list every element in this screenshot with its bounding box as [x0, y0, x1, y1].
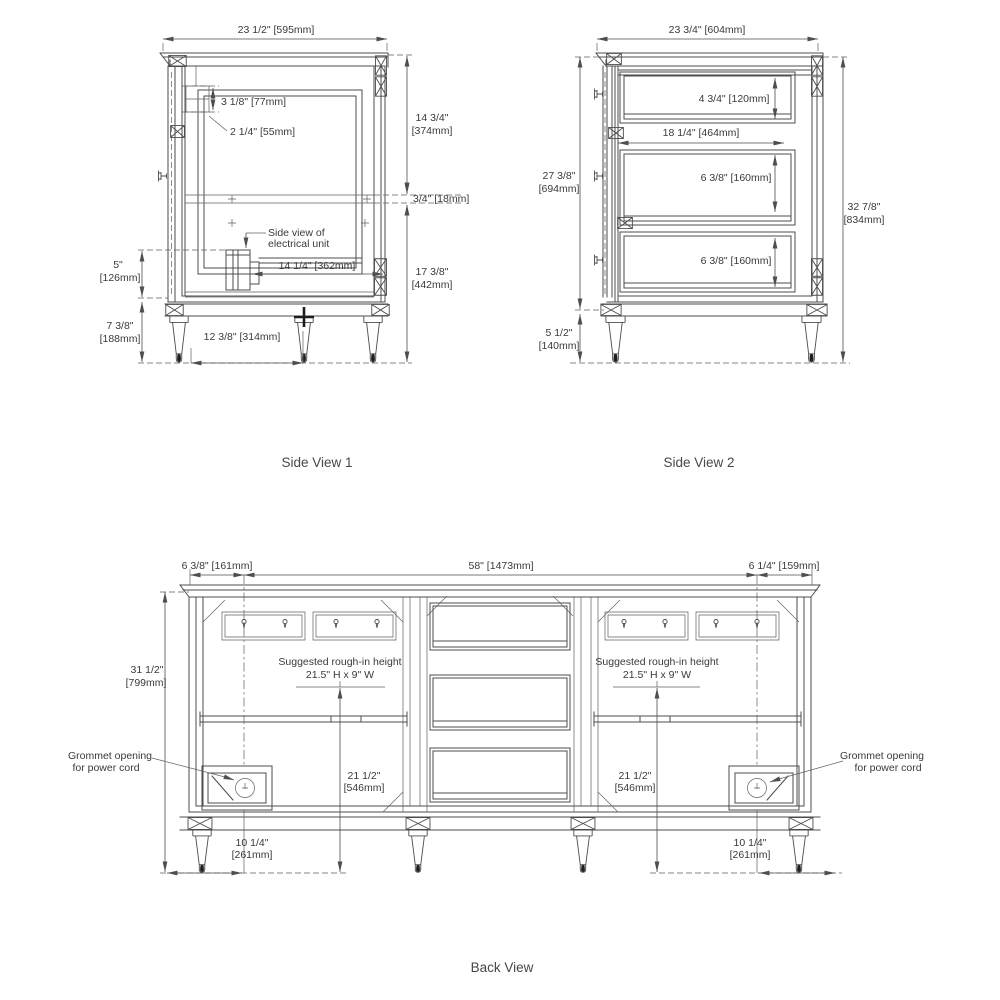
bv-grommet-center-marks	[242, 783, 760, 789]
bv-dim-center-width: 58" [1473mm]	[468, 560, 533, 572]
bv-dim-grommet-offset-left-in: 10 1/4"	[236, 837, 269, 849]
side-view-1-title: Side View 1	[281, 455, 352, 470]
bv-roughin-leader-left	[296, 681, 385, 687]
bv-keyhole-icon	[375, 620, 379, 628]
bv-grommet-note-right-line2: for power cord	[854, 762, 921, 774]
vanity-dimension-drawing: 23 1/2" [595mm] 3 1/8" [77mm] 2 1/4" [55…	[0, 0, 1000, 1000]
sv2-dim-cabinet-height-in: 27 3/8"	[543, 170, 576, 182]
sv1-x-block	[166, 304, 183, 315]
bv-dim-overall-height-in: 31 1/2"	[131, 664, 164, 676]
bv-roughin-note-right-line1: Suggested rough-in height	[595, 656, 718, 668]
bv-dim-grommet-offset-left-mm: [261mm]	[232, 849, 273, 861]
bv-grommet-centerlines-lower	[244, 810, 757, 873]
sv1-countertop	[160, 53, 388, 67]
bv-keyhole-icon	[283, 620, 287, 628]
bv-back-rails	[200, 712, 801, 726]
sv2-countertop	[596, 53, 823, 67]
sv1-dim-width: 23 1/2" [595mm]	[238, 24, 315, 36]
bv-body-frame	[189, 597, 811, 812]
bv-countertop	[180, 585, 820, 597]
bv-dim-grommet-offset-right-mm: [261mm]	[730, 849, 771, 861]
sv2-door-knob	[595, 255, 603, 266]
sv1-dim-leg-height-in: 7 3/8"	[106, 320, 133, 332]
bv-dim-grommet-offset-right-in: 10 1/4"	[734, 837, 767, 849]
bv-x-block	[571, 818, 595, 830]
bv-dim-right-offset: 6 1/4" [159mm]	[749, 560, 820, 572]
sv1-dim-electrical-width: 14 1/4" [362mm]	[279, 260, 356, 272]
bv-x-block	[188, 818, 212, 830]
sv2-dim-overall-height-mm: [834mm]	[844, 214, 885, 226]
bv-keyhole-icon	[622, 620, 626, 628]
sv2-x-block	[609, 127, 624, 138]
bv-drawer-backs	[430, 603, 570, 802]
side-view-2-drawing: 23 3/4" [604mm] 4 3/4" [120mm] 18 1/4" […	[539, 24, 885, 470]
sv1-x-block	[372, 304, 389, 315]
sv1-door-knob	[159, 171, 167, 182]
sv1-electrical-note-line2: electrical unit	[268, 238, 329, 250]
technical-drawing-page: 23 1/2" [595mm] 3 1/8" [77mm] 2 1/4" [55…	[0, 0, 1000, 1000]
bv-leg	[790, 830, 808, 872]
sv1-leg	[170, 316, 188, 362]
sv1-dim-cleat-height: 3 1/8" [77mm]	[221, 96, 286, 108]
bv-leg	[574, 830, 592, 872]
sv1-center-cross-mark	[294, 307, 314, 327]
bv-dividers	[403, 597, 598, 812]
sv2-dim-overall-height-in: 32 7/8"	[848, 201, 881, 213]
bv-base-rail	[180, 817, 820, 830]
bv-leg	[193, 830, 211, 872]
bv-keyhole-icon	[663, 620, 667, 628]
sv2-dim-cabinet-height-mm: [694mm]	[539, 183, 580, 195]
bv-x-block	[789, 818, 813, 830]
bv-roughin-leader-right	[613, 681, 700, 687]
bv-grommet-note-left-line2: for power cord	[72, 762, 139, 774]
sv1-base-rail	[165, 304, 388, 316]
bv-keyhole-icon	[714, 620, 718, 628]
sv1-dim-leg-spacing: 12 3/8" [314mm]	[204, 331, 281, 343]
sv2-dim-drawer3: 6 3/8" [160mm]	[701, 255, 772, 267]
sv1-dim-toe-space-in: 5"	[113, 259, 123, 271]
sv2-dim-drawer2: 6 3/8" [160mm]	[701, 172, 772, 184]
sv1-dim-lower-height-mm: [442mm]	[412, 279, 453, 291]
sv2-base-rail	[601, 304, 827, 316]
bv-dim-left-offset: 6 3/8" [161mm]	[182, 560, 253, 572]
sv1-dim-leg-height-mm: [188mm]	[100, 333, 141, 345]
bv-corner-braces	[203, 596, 799, 812]
sv2-door-knob	[595, 171, 603, 182]
sv2-dim-leg-height-in: 5 1/2"	[545, 327, 572, 339]
sv1-dim-upper-height-mm: [374mm]	[412, 125, 453, 137]
sv2-dim-opening: 18 1/4" [464mm]	[663, 127, 740, 139]
bv-dim-overall-height-mm: [799mm]	[126, 677, 167, 689]
side-view-1-drawing: 23 1/2" [595mm] 3 1/8" [77mm] 2 1/4" [55…	[100, 24, 470, 470]
bv-leg	[409, 830, 427, 872]
sv1-screw-marks	[228, 195, 371, 227]
bv-hanger-panels	[222, 612, 779, 640]
bv-dim-roughin-height-right-in: 21 1/2"	[619, 770, 652, 782]
bv-x-block	[406, 818, 430, 830]
bv-keyhole-icon	[334, 620, 338, 628]
back-view-title: Back View	[471, 960, 534, 975]
sv2-dim-width: 23 3/4" [604mm]	[669, 24, 746, 36]
bv-roughin-note-right-line2: 21.5" H x 9" W	[623, 669, 691, 681]
bv-dim-roughin-height-left-in: 21 1/2"	[348, 770, 381, 782]
bv-grommet-leader-left-arrow	[225, 777, 234, 780]
sv2-dim-width-extensions	[597, 43, 818, 51]
bv-roughin-note-left-line1: Suggested rough-in height	[278, 656, 401, 668]
sv2-dim-drawer1: 4 3/4" [120mm]	[699, 93, 770, 105]
bv-roughin-note-left-line2: 21.5" H x 9" W	[306, 669, 374, 681]
sv1-dim-width-extensions	[163, 43, 387, 51]
sv1-dim-toe-space-mm: [126mm]	[100, 272, 141, 284]
bv-grommet-note-left-line1: Grommet opening	[68, 750, 152, 762]
sv2-x-block	[607, 53, 622, 64]
sv1-leader-cleat-offset	[209, 116, 227, 131]
sv2-dim-leg-height-mm: [140mm]	[539, 340, 580, 352]
sv2-leg	[606, 316, 625, 362]
sv1-dim-stretcher: 3/4" [18mm]	[413, 193, 469, 205]
sv1-dim-cleat-offset: 2 1/4" [55mm]	[230, 126, 295, 138]
bv-grommet-note-right-line1: Grommet opening	[840, 750, 924, 762]
bv-dim-roughin-height-right-mm: [546mm]	[615, 782, 656, 794]
sv2-x-block	[807, 304, 827, 315]
bv-dim-roughin-height-left-mm: [546mm]	[344, 782, 385, 794]
sv2-leg	[802, 316, 821, 362]
sv1-stretcher	[185, 195, 374, 203]
sv1-leg	[364, 316, 382, 362]
bv-grommet-boxes	[202, 766, 799, 810]
side-view-2-title: Side View 2	[663, 455, 734, 470]
back-view-drawing: 6 3/8" [161mm] 58" [1473mm] 6 1/4" [159m…	[68, 560, 924, 975]
sv2-door-knob	[595, 89, 603, 100]
sv1-dim-lower-height-in: 17 3/8"	[416, 266, 449, 278]
sv1-dim-upper-height-in: 14 3/4"	[416, 112, 449, 124]
bv-grommet-leader-right-arrow	[770, 779, 779, 782]
